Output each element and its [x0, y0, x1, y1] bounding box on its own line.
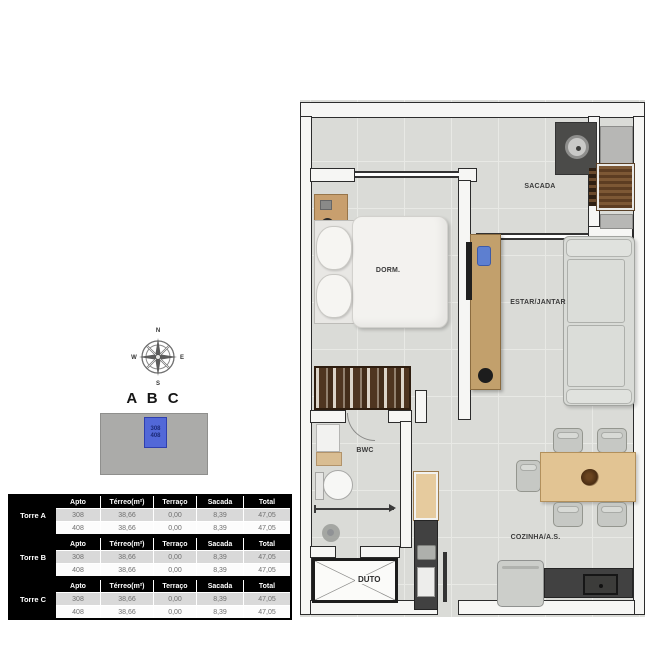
torre-label: Torre B: [10, 538, 56, 576]
table-cell: 47,05: [244, 551, 290, 563]
table-cell: 0,00: [154, 606, 196, 618]
kitchen-counter-mid: [414, 520, 438, 610]
room-label-cozinha: COZINHA/A.S.: [493, 534, 578, 541]
col-header: Térreo(m²): [101, 538, 153, 550]
sofa-armrest: [566, 239, 632, 257]
col-header: Terraço: [154, 538, 196, 550]
col-header: Apto: [56, 580, 100, 592]
col-header: Sacada: [197, 580, 243, 592]
sofa-armrest: [566, 389, 632, 404]
rack-decor: [477, 246, 491, 266]
table-cell: 408: [56, 606, 100, 618]
table-cell: 0,00: [154, 564, 196, 576]
table-cell: 408: [56, 564, 100, 576]
table-cell: 0,00: [154, 522, 196, 534]
towers-title: A B C: [96, 390, 212, 407]
kitchen-cabinet: [414, 472, 438, 520]
chair: [597, 502, 627, 527]
bathroom-vanity: [316, 424, 340, 452]
table-cell: 0,00: [154, 551, 196, 563]
torre-label: Torre C: [10, 580, 56, 618]
unit-number-bottom: 408: [150, 433, 160, 440]
col-header: Sacada: [197, 496, 243, 508]
tv-icon: [466, 242, 472, 300]
bathroom-wall-bottom: [310, 546, 336, 558]
col-header: Apto: [56, 496, 100, 508]
table-cell: 408: [56, 522, 100, 534]
area-table-torre-b: Torre B Apto Térreo(m²) Terraço Sacada T…: [8, 536, 292, 578]
table-cell: 8,39: [197, 593, 243, 605]
compass-e: E: [180, 355, 184, 361]
refrigerator: [497, 560, 544, 607]
chair: [553, 428, 583, 453]
table-cell: 47,05: [244, 593, 290, 605]
torre-label: Torre A: [10, 496, 56, 534]
col-header: Total: [244, 496, 290, 508]
area-table-torre-c: Torre C Apto Térreo(m²) Terraço Sacada T…: [8, 578, 292, 620]
kitchen-sink: [583, 574, 618, 595]
table-cell: 0,00: [154, 509, 196, 521]
col-header: Térreo(m²): [101, 496, 153, 508]
compass-w: W: [131, 355, 137, 361]
table-cell: 8,39: [197, 522, 243, 534]
ac-condenser-unit: [597, 164, 634, 210]
wardrobe: [314, 366, 411, 410]
compass-n: N: [156, 328, 160, 334]
table-cell: 8,39: [197, 564, 243, 576]
shower-drain: [322, 524, 340, 542]
sofa-cushion: [567, 259, 625, 323]
hall-door-jamb: [415, 390, 427, 423]
grill-bowl: [565, 135, 589, 159]
appliance: [417, 545, 436, 560]
table-cell: 308: [56, 551, 100, 563]
rack-bowl: [478, 368, 493, 383]
dining-table: [540, 452, 636, 502]
table-cell: 308: [56, 593, 100, 605]
room-label-estar: ESTAR/JANTAR: [493, 299, 583, 306]
table-cell: 8,39: [197, 509, 243, 521]
area-tables: Torre A Apto Térreo(m²) Terraço Sacada T…: [8, 494, 292, 620]
col-header: Sacada: [197, 538, 243, 550]
table-cell: 308: [56, 509, 100, 521]
table-cell: 38,66: [101, 522, 153, 534]
unit-number-top: 308: [150, 426, 160, 433]
compass-s: S: [156, 381, 160, 386]
bathroom-wall-top: [310, 410, 346, 423]
room-label-bwc: BWC: [348, 447, 382, 454]
pillow: [316, 274, 352, 318]
bathroom-wall-bottom: [360, 546, 400, 558]
col-header: Terraço: [154, 580, 196, 592]
compass-rose: N S W E: [130, 324, 186, 386]
chair: [553, 502, 583, 527]
bathroom-door-swing: [347, 413, 375, 441]
highlighted-unit: 308 408: [144, 417, 167, 448]
outer-wall-bottom: [458, 600, 635, 615]
vanity-cabinet: [316, 452, 342, 466]
table-cell: 38,66: [101, 606, 153, 618]
laundry-sink: [417, 567, 435, 597]
floor-plan: DUTO SACADA DORM. ESTAR/JANTAR BWC COZIN…: [300, 100, 645, 617]
bedroom-window: [355, 171, 459, 178]
table-cell: 38,66: [101, 593, 153, 605]
plant-centerpiece: [581, 469, 599, 486]
bedroom-wall: [310, 168, 355, 182]
room-label-dorm: DORM.: [358, 267, 418, 274]
kitchen-counter-bottom: [544, 568, 633, 598]
duto-shaft: DUTO: [312, 558, 398, 603]
building-position-diagram: 308 408: [100, 413, 208, 475]
table-cell: 47,05: [244, 606, 290, 618]
outer-wall-left: [300, 116, 312, 615]
bathroom-wall-right: [400, 421, 412, 548]
table-cell: 47,05: [244, 522, 290, 534]
chair: [516, 460, 541, 492]
table-cell: 0,00: [154, 593, 196, 605]
table-cell: 38,66: [101, 564, 153, 576]
table-cell: 8,39: [197, 606, 243, 618]
col-header: Terraço: [154, 496, 196, 508]
table-cell: 47,05: [244, 564, 290, 576]
pillow: [316, 226, 352, 270]
sofa: [563, 236, 635, 406]
sofa-cushion: [567, 325, 625, 387]
toilet-bowl: [323, 470, 353, 500]
shower-partition: [314, 508, 394, 510]
table-cell: 38,66: [101, 551, 153, 563]
col-header: Total: [244, 538, 290, 550]
col-header: Total: [244, 580, 290, 592]
table-cell: 47,05: [244, 509, 290, 521]
niche-panel: [600, 214, 633, 229]
entrance-door: [443, 552, 447, 602]
nightstand-decor: [320, 200, 332, 210]
col-header: Térreo(m²): [101, 580, 153, 592]
room-label-sacada: SACADA: [510, 183, 570, 190]
table-cell: 8,39: [197, 551, 243, 563]
area-table-torre-a: Torre A Apto Térreo(m²) Terraço Sacada T…: [8, 494, 292, 536]
table-cell: 38,66: [101, 509, 153, 521]
chair: [597, 428, 627, 453]
col-header: Apto: [56, 538, 100, 550]
